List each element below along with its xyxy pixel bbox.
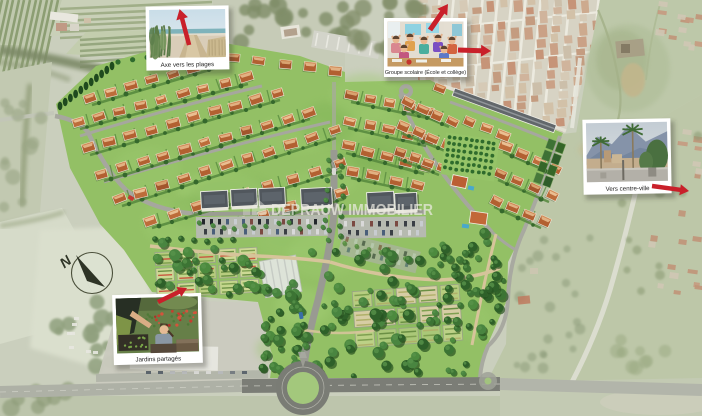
svg-text:Jardins partagés: Jardins partagés xyxy=(135,355,181,363)
svg-text:Axe vers les plages: Axe vers les plages xyxy=(161,61,215,69)
svg-text:Groupe scolaire (École et coll: Groupe scolaire (École et collège) xyxy=(385,69,466,76)
svg-text:Vers centre-ville: Vers centre-ville xyxy=(606,185,651,193)
svg-text:DEPRAUW IMMOBILIER: DEPRAUW IMMOBILIER xyxy=(271,202,433,219)
